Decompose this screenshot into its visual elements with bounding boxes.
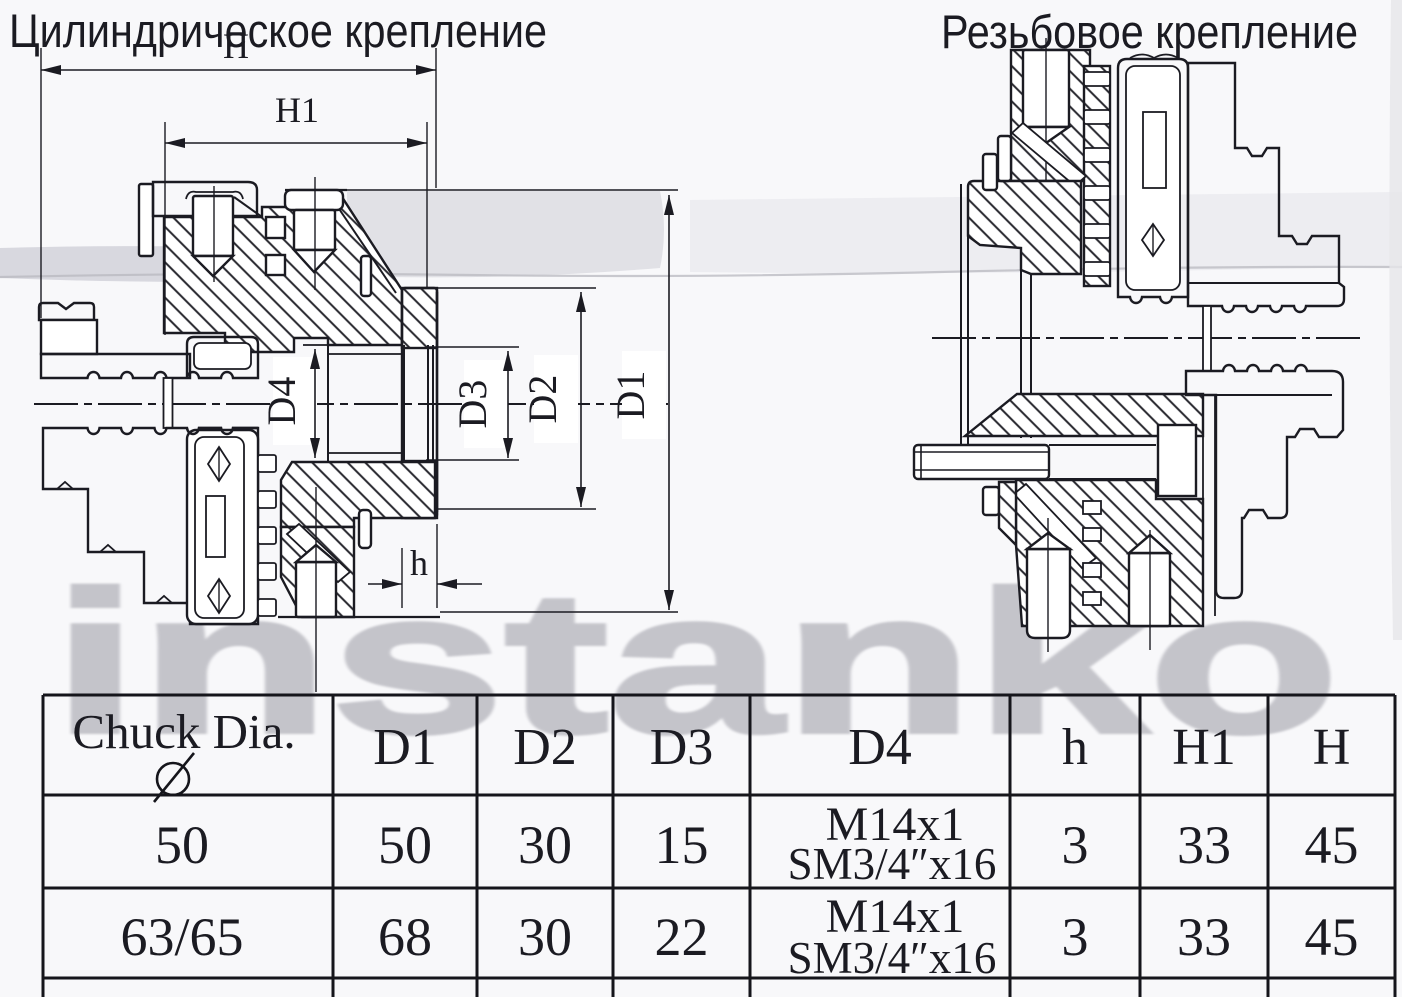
svg-text:H1: H1 <box>1172 719 1236 776</box>
svg-text:Резьбовое крепление: Резьбовое крепление <box>941 5 1358 58</box>
svg-text:22: 22 <box>655 907 709 967</box>
svg-text:30: 30 <box>518 815 572 875</box>
svg-text:H1: H1 <box>275 90 319 130</box>
svg-text:D1: D1 <box>373 719 437 776</box>
svg-text:50: 50 <box>378 815 432 875</box>
svg-text:15: 15 <box>655 815 709 875</box>
svg-text:D2: D2 <box>520 375 565 424</box>
svg-text:3: 3 <box>1062 907 1089 967</box>
svg-text:D1: D1 <box>608 371 653 420</box>
svg-text:D3: D3 <box>450 380 495 429</box>
svg-text:SM3/4″x16: SM3/4″x16 <box>788 839 997 889</box>
svg-text:Цилиндрическое крепление: Цилиндрическое крепление <box>9 4 547 57</box>
svg-text:50: 50 <box>155 815 209 875</box>
svg-text:33: 33 <box>1177 907 1231 967</box>
svg-text:45: 45 <box>1305 815 1359 875</box>
svg-text:D3: D3 <box>650 719 714 776</box>
svg-text:h: h <box>410 543 428 583</box>
svg-text:68: 68 <box>378 907 432 967</box>
svg-text:D2: D2 <box>513 719 577 776</box>
svg-text:D4: D4 <box>259 377 304 426</box>
svg-text:H: H <box>223 26 249 66</box>
svg-text:30: 30 <box>518 907 572 967</box>
svg-text:45: 45 <box>1305 907 1359 967</box>
svg-text:33: 33 <box>1177 815 1231 875</box>
svg-text:SM3/4″x16: SM3/4″x16 <box>788 933 997 983</box>
svg-text:D4: D4 <box>848 719 912 776</box>
svg-text:H: H <box>1313 719 1351 776</box>
svg-text:63/65: 63/65 <box>120 907 243 967</box>
svg-text:Chuck Dia.: Chuck Dia. <box>72 704 295 759</box>
svg-text:3: 3 <box>1062 815 1089 875</box>
svg-text:h: h <box>1062 719 1088 776</box>
